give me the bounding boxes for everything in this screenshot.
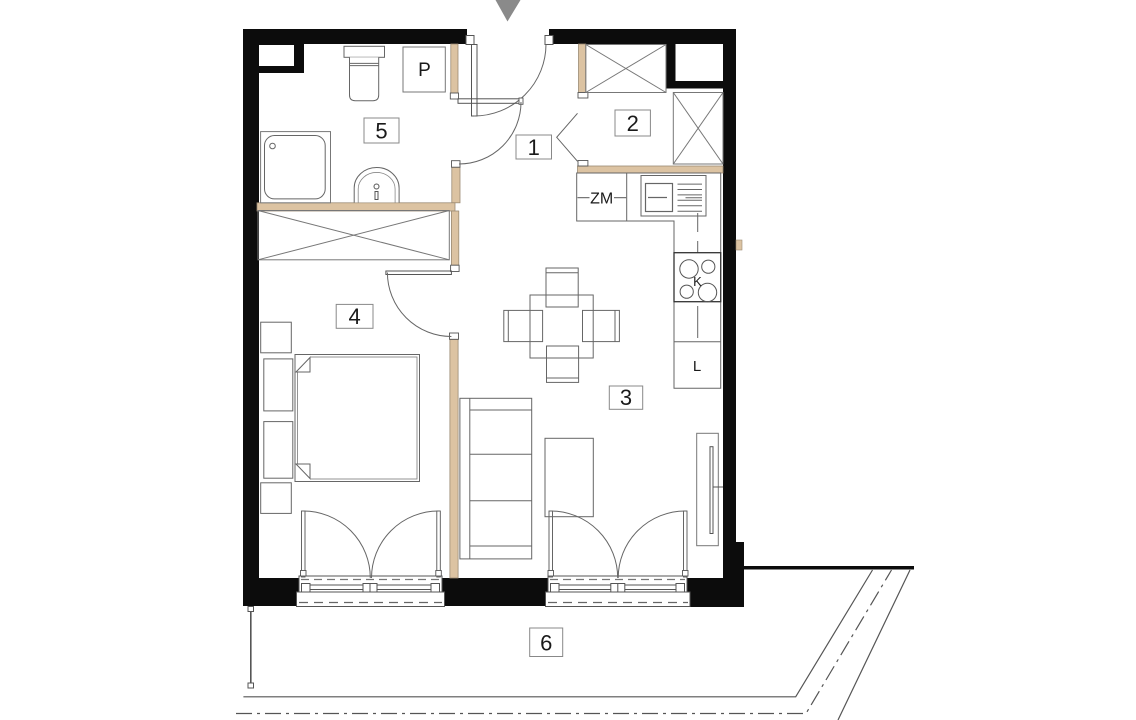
svg-text:3: 3 xyxy=(620,385,632,410)
svg-text:ZM: ZM xyxy=(590,191,613,208)
svg-text:L: L xyxy=(693,358,701,375)
svg-text:5: 5 xyxy=(375,119,387,144)
svg-text:6: 6 xyxy=(540,631,552,656)
svg-text:2: 2 xyxy=(627,111,639,136)
svg-text:1: 1 xyxy=(528,135,540,160)
svg-text:K: K xyxy=(693,274,702,289)
svg-text:P: P xyxy=(418,60,431,81)
svg-text:4: 4 xyxy=(348,304,360,329)
